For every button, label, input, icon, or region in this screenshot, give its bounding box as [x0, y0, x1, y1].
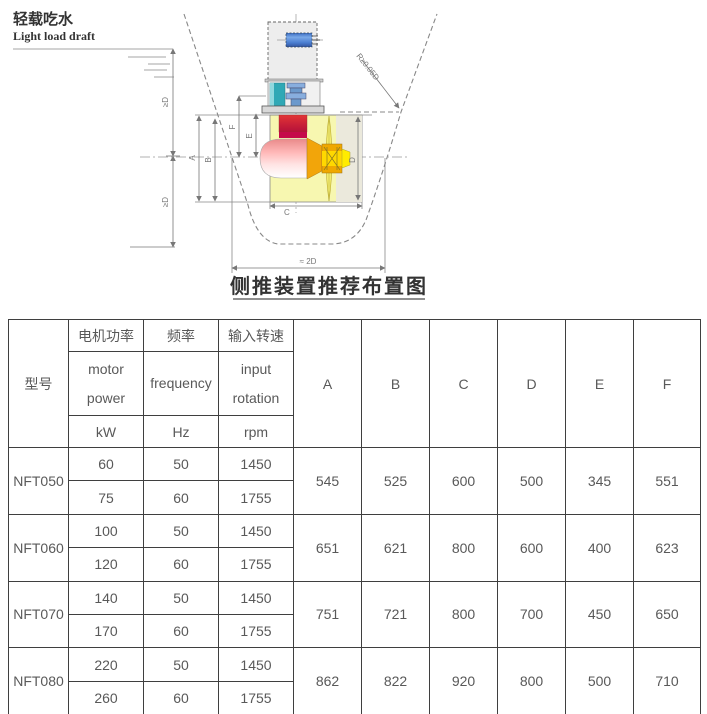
freq-cell: 50	[144, 448, 219, 481]
dim-e-cell: 400	[566, 514, 634, 581]
header-unit-hz: Hz	[144, 416, 219, 448]
header-frequency-zh: 频率	[144, 320, 219, 352]
pod-body	[260, 139, 307, 178]
header-frequency-en: frequency	[144, 352, 219, 416]
power-cell: 120	[69, 548, 144, 581]
water-surface-marks	[128, 57, 174, 77]
freq-cell: 60	[144, 481, 219, 514]
draft-label-en: Light load draft	[13, 29, 95, 43]
hub-gearbox	[322, 144, 342, 173]
submergence-dimension: ≥D ≥D	[130, 49, 180, 247]
header-dim-c: C	[430, 320, 498, 448]
rpm-cell: 1755	[219, 614, 294, 647]
power-cell: 170	[69, 614, 144, 647]
freq-cell: 50	[144, 581, 219, 614]
radius-label: R≥0.05D	[354, 52, 381, 83]
coupling-section	[262, 79, 324, 113]
header-input-rotation-en: input rotation	[219, 352, 294, 416]
model-cell: NFT060	[9, 514, 69, 581]
approx-2d-label: ≈ 2D	[300, 257, 317, 266]
dim-f-cell: 623	[634, 514, 701, 581]
radius-dimension: R≥0.05D	[354, 52, 399, 108]
header-dim-e: E	[566, 320, 634, 448]
ge-d-upper-label: ≥D	[161, 97, 170, 107]
dim-c-label: C	[284, 208, 290, 217]
table-row: NFT050 60 50 1450 545 525 600 500 345 55…	[9, 448, 701, 481]
power-cell: 60	[69, 448, 144, 481]
model-cell: NFT080	[9, 648, 69, 714]
table-row: NFT080 220 50 1450 862 822 920 800 500 7…	[9, 648, 701, 681]
dim-e-label: E	[245, 133, 254, 138]
freq-cell: 50	[144, 514, 219, 547]
header-dim-b: B	[362, 320, 430, 448]
rpm-cell: 1755	[219, 481, 294, 514]
dim-b-cell: 721	[362, 581, 430, 648]
freq-cell: 50	[144, 648, 219, 681]
dim-c-cell: 800	[430, 581, 498, 648]
power-cell: 140	[69, 581, 144, 614]
ge-d-lower-label: ≥D	[161, 197, 170, 207]
header-unit-kw: kW	[69, 416, 144, 448]
header-motor-power-zh: 电机功率	[69, 320, 144, 352]
dim-a-cell: 862	[294, 648, 362, 714]
header-unit-rpm: rpm	[219, 416, 294, 448]
rpm-cell: 1450	[219, 514, 294, 547]
model-cell: NFT050	[9, 448, 69, 515]
spec-table-container: 型号 电机功率 频率 输入转速 A B C D E F motor power …	[8, 319, 704, 714]
header-dim-f: F	[634, 320, 701, 448]
power-cell: 100	[69, 514, 144, 547]
dim-a-cell: 751	[294, 581, 362, 648]
rpm-cell: 1755	[219, 681, 294, 714]
model-cell: NFT070	[9, 581, 69, 648]
draft-label-zh: 轻载吃水	[13, 10, 74, 28]
dim-f-cell: 710	[634, 648, 701, 714]
page: 轻载吃水 Light load draft ≥D ≥D R≥0.05D	[0, 0, 707, 714]
dim-b-cell: 525	[362, 448, 430, 515]
freq-cell: 60	[144, 614, 219, 647]
header-dim-a: A	[294, 320, 362, 448]
electric-motor	[286, 33, 312, 47]
caption-text: 侧推装置推荐布置图	[230, 274, 428, 298]
dim-e-cell: 450	[566, 581, 634, 648]
freq-cell: 60	[144, 548, 219, 581]
dim-d-cell: 700	[498, 581, 566, 648]
header-model: 型号	[9, 320, 69, 448]
power-cell: 220	[69, 648, 144, 681]
dim-c-cell: 920	[430, 648, 498, 714]
table-row: NFT070 140 50 1450 751 721 800 700 450 6…	[9, 581, 701, 614]
dim-b-label: B	[204, 157, 213, 162]
header-dim-d: D	[498, 320, 566, 448]
mounting-base-plate	[262, 106, 324, 113]
upper-gear-housing	[279, 115, 307, 132]
dim-a-cell: 651	[294, 514, 362, 581]
dim-f-cell: 650	[634, 581, 701, 648]
dim-d-cell: 800	[498, 648, 566, 714]
dim-e-cell: 345	[566, 448, 634, 515]
freq-cell: 60	[144, 681, 219, 714]
rpm-cell: 1450	[219, 648, 294, 681]
rpm-cell: 1450	[219, 581, 294, 614]
dim-a-cell: 545	[294, 448, 362, 515]
motor-envelope	[268, 22, 325, 82]
light-load-draft-label: 轻载吃水 Light load draft	[13, 10, 174, 77]
thruster-arrangement-drawing: 轻载吃水 Light load draft ≥D ≥D R≥0.05D	[0, 0, 707, 316]
dim-d-cell: 500	[498, 448, 566, 515]
drawing-caption: 侧推装置推荐布置图	[230, 274, 428, 299]
rpm-cell: 1450	[219, 448, 294, 481]
thruster-spec-table: 型号 电机功率 频率 输入转速 A B C D E F motor power …	[8, 319, 701, 714]
dim-c-cell: 800	[430, 514, 498, 581]
dim-f-label: F	[228, 124, 237, 129]
dim-e-cell: 500	[566, 648, 634, 714]
dim-c-cell: 600	[430, 448, 498, 515]
power-cell: 260	[69, 681, 144, 714]
header-motor-power-en: motor power	[69, 352, 144, 416]
dim-a-label: A	[188, 155, 197, 161]
dim-d-label: D	[348, 157, 357, 163]
power-cell: 75	[69, 481, 144, 514]
rpm-cell: 1755	[219, 548, 294, 581]
dim-d-cell: 600	[498, 514, 566, 581]
header-input-rotation-zh: 输入转速	[219, 320, 294, 352]
dim-f-cell: 551	[634, 448, 701, 515]
dim-b-cell: 621	[362, 514, 430, 581]
dim-b-cell: 822	[362, 648, 430, 714]
table-row: NFT060 100 50 1450 651 621 800 600 400 6…	[9, 514, 701, 547]
